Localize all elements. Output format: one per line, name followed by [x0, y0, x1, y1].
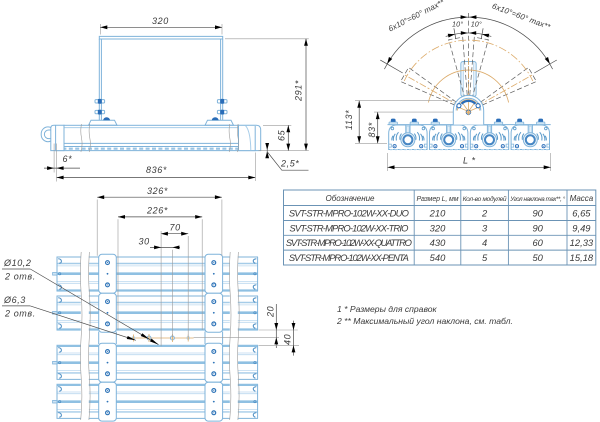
svg-text:40: 40	[283, 334, 293, 345]
svg-text:Угол наклона max**, °: Угол наклона max**, °	[509, 196, 566, 203]
svg-text:60: 60	[532, 237, 543, 248]
svg-text:5: 5	[482, 252, 488, 263]
svg-text:6x10°=60° max**: 6x10°=60° max**	[387, 0, 447, 34]
svg-text:Ø10,2: Ø10,2	[3, 258, 32, 268]
svg-text:30: 30	[139, 236, 150, 246]
svg-text:2,5*: 2,5*	[280, 158, 299, 168]
svg-text:3: 3	[482, 222, 488, 233]
svg-text:L *: L *	[463, 156, 476, 166]
svg-text:90: 90	[532, 208, 543, 219]
svg-text:6x10°=60° max**: 6x10°=60° max**	[491, 1, 553, 31]
svg-text:226*: 226*	[146, 206, 168, 216]
svg-text:Кол-во модулей: Кол-во модулей	[463, 195, 507, 203]
svg-text:1 * Размеры для справок: 1 * Размеры для справок	[337, 304, 438, 314]
svg-text:6,65: 6,65	[572, 208, 591, 219]
svg-text:20: 20	[266, 306, 276, 318]
svg-text:SVT-STR-MPRO-102W-XX-QUATTRO: SVT-STR-MPRO-102W-XX-QUATTRO	[286, 237, 413, 248]
svg-text:Размер L, мм: Размер L, мм	[417, 196, 459, 203]
svg-text:9,49: 9,49	[572, 222, 591, 233]
svg-text:291*: 291*	[294, 80, 304, 102]
svg-text:320: 320	[152, 16, 169, 26]
svg-text:2: 2	[481, 208, 488, 219]
svg-text:15,18: 15,18	[570, 252, 594, 263]
svg-text:83*: 83*	[367, 122, 377, 137]
svg-text:90: 90	[532, 222, 543, 233]
svg-text:65: 65	[277, 129, 287, 141]
svg-text:SVT-STR-MPRO-102W-XX-DUO: SVT-STR-MPRO-102W-XX-DUO	[289, 208, 410, 219]
svg-text:320: 320	[430, 222, 446, 233]
svg-text:836*: 836*	[146, 165, 167, 175]
svg-text:6*: 6*	[63, 154, 73, 164]
svg-text:113*: 113*	[344, 110, 354, 130]
svg-text:2 ** Максимальный угол наклон: 2 ** Максимальный угол наклона, см. табл…	[336, 316, 513, 326]
svg-text:SVT-STR-MPRO-102W-XX-PENTA: SVT-STR-MPRO-102W-XX-PENTA	[289, 252, 409, 263]
svg-text:Масса: Масса	[570, 194, 594, 203]
svg-text:12,33: 12,33	[570, 237, 594, 248]
svg-text:50: 50	[532, 252, 543, 263]
svg-text:70: 70	[170, 223, 181, 233]
svg-text:10°: 10°	[471, 19, 482, 28]
svg-text:326*: 326*	[147, 186, 168, 196]
svg-text:4: 4	[482, 237, 487, 248]
svg-text:430: 430	[430, 237, 446, 248]
svg-text:Обозначение: Обозначение	[325, 194, 375, 203]
svg-text:Ø6,3: Ø6,3	[3, 295, 26, 305]
svg-text:2 отв.: 2 отв.	[4, 309, 36, 319]
svg-text:10°: 10°	[452, 19, 463, 28]
svg-text:2 отв.: 2 отв.	[4, 272, 36, 282]
svg-text:210: 210	[429, 208, 446, 219]
svg-text:SVT-STR-MPRO-102W-XX-TRIO: SVT-STR-MPRO-102W-XX-TRIO	[289, 222, 409, 233]
svg-text:540: 540	[430, 252, 446, 263]
